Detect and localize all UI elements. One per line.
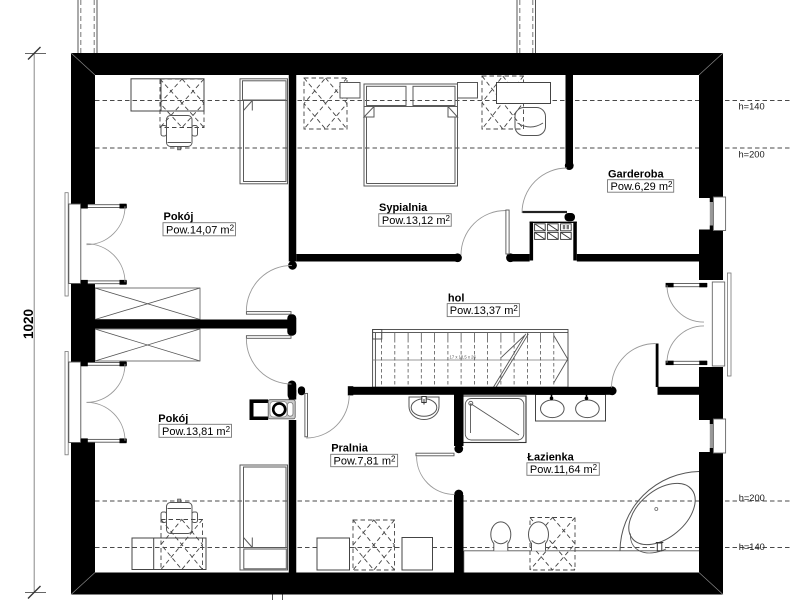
svg-text:Pow.13,12 m2: Pow.13,12 m2 [382,214,451,227]
svg-text:Pokój: Pokój [158,413,188,425]
svg-text:Sypialnia: Sypialnia [379,202,428,214]
svg-text:Pow.14,07 m2: Pow.14,07 m2 [166,223,235,236]
svg-text:Pow.11,64 m2: Pow.11,64 m2 [530,463,598,476]
svg-text:1020: 1020 [21,309,36,339]
svg-text:h=200: h=200 [739,493,765,503]
svg-text:17 x 18,5 x 26: 17 x 18,5 x 26 [450,355,477,360]
svg-text:Pow.13,81 m2: Pow.13,81 m2 [162,425,231,438]
svg-text:h=200: h=200 [739,149,765,159]
svg-text:Garderoba: Garderoba [608,168,665,180]
svg-text:Pow.6,29 m2: Pow.6,29 m2 [611,180,673,193]
svg-text:Pow.7,81 m2: Pow.7,81 m2 [334,455,396,468]
svg-text:Pow.13,37 m2: Pow.13,37 m2 [450,304,519,317]
svg-text:Łazienka: Łazienka [527,452,574,464]
svg-text:h=140: h=140 [739,101,765,111]
svg-text:hol: hol [448,293,465,305]
svg-text:Pralnia: Pralnia [331,443,369,455]
svg-text:Pokój: Pokój [164,211,194,223]
svg-text:h=140: h=140 [739,542,765,552]
